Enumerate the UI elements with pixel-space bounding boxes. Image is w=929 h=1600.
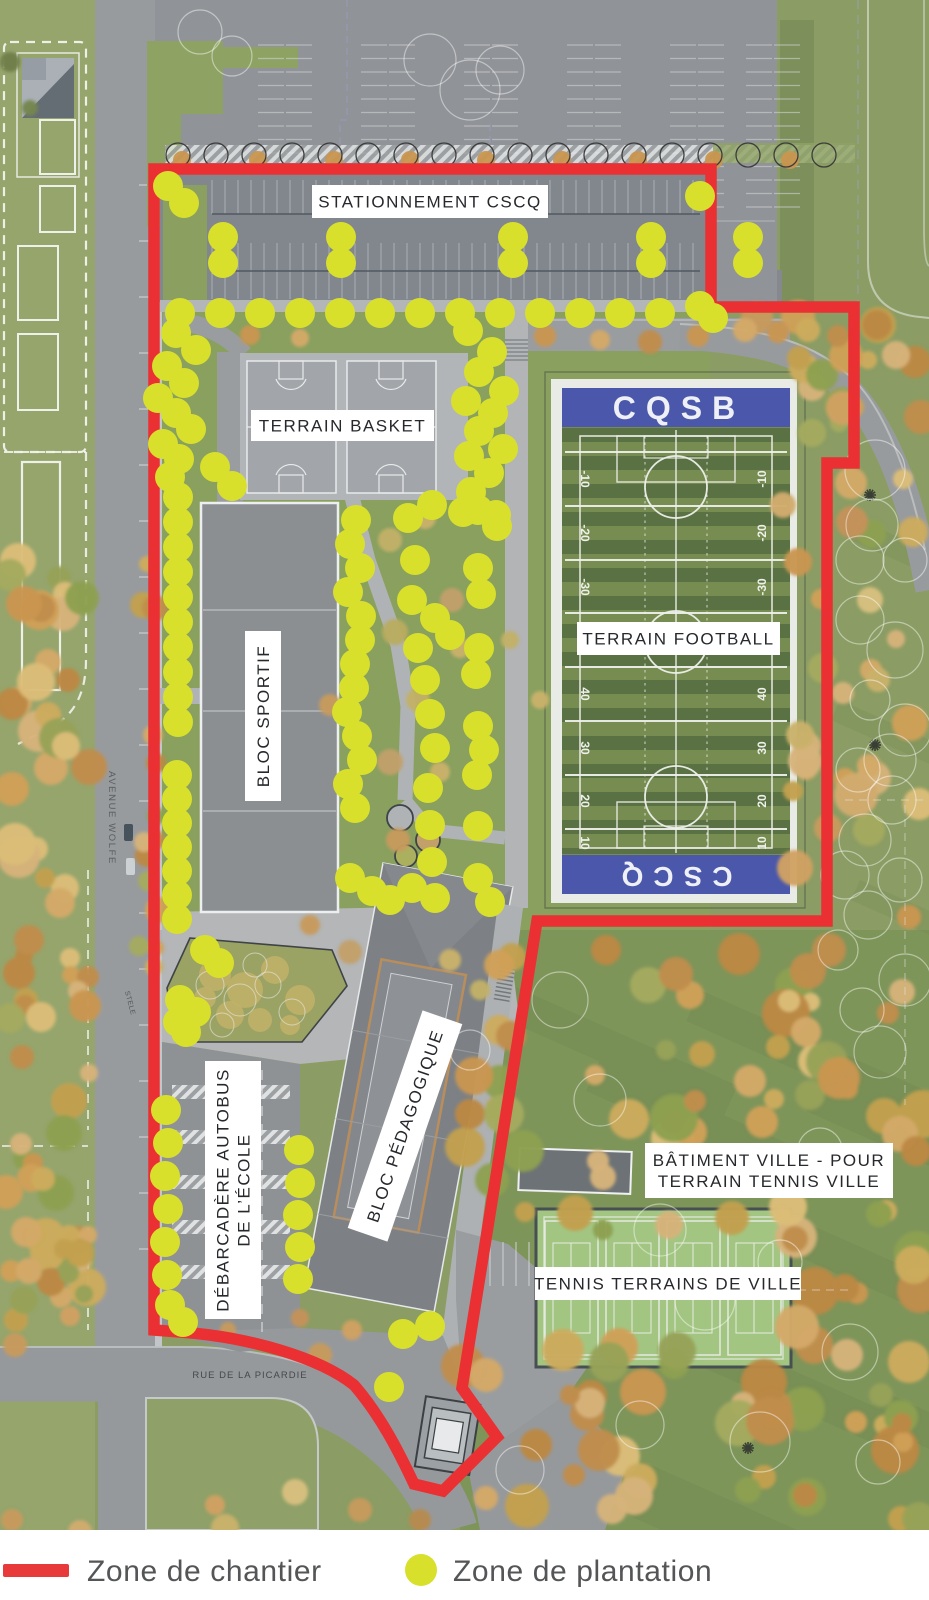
svg-text:-10: -10 (578, 470, 592, 488)
svg-text:10: 10 (755, 836, 769, 850)
svg-text:-30: -30 (578, 578, 592, 596)
svg-text:STATIONNEMENT CSCQ: STATIONNEMENT CSCQ (318, 192, 541, 211)
svg-text:AVENUE WOLFE: AVENUE WOLFE (106, 771, 117, 865)
svg-text:10: 10 (578, 836, 592, 850)
svg-text:BÂTIMENT VILLE - POUR: BÂTIMENT VILLE - POUR (653, 1151, 885, 1170)
svg-text:20: 20 (755, 794, 769, 808)
svg-text:TERRAIN BASKET: TERRAIN BASKET (259, 416, 426, 435)
svg-text:40: 40 (755, 687, 769, 701)
svg-text:40: 40 (578, 687, 592, 701)
svg-text:CQSB: CQSB (613, 390, 745, 426)
svg-text:-20: -20 (578, 524, 592, 542)
svg-text:20: 20 (578, 794, 592, 808)
svg-text:Zone de plantation: Zone de plantation (453, 1555, 712, 1588)
svg-text:30: 30 (578, 741, 592, 755)
svg-text:-20: -20 (755, 524, 769, 542)
svg-text:DE L’ÉCOLE: DE L’ÉCOLE (234, 1133, 253, 1246)
svg-text:30: 30 (755, 741, 769, 755)
svg-text:TERRAIN TENNIS VILLE: TERRAIN TENNIS VILLE (658, 1172, 880, 1191)
svg-text:TENNIS TERRAINS DE VILLE: TENNIS TERRAINS DE VILLE (534, 1275, 802, 1294)
svg-text:BLOC SPORTIF: BLOC SPORTIF (254, 645, 273, 787)
svg-text:-30: -30 (755, 578, 769, 596)
svg-text:TERRAIN FOOTBALL: TERRAIN FOOTBALL (582, 630, 774, 649)
svg-text:Zone de chantier: Zone de chantier (87, 1555, 322, 1588)
svg-text:DÉBARCADÈRE AUTOBUS: DÉBARCADÈRE AUTOBUS (213, 1068, 232, 1312)
svg-text:RUE DE LA PICARDIE: RUE DE LA PICARDIE (192, 1370, 307, 1381)
svg-text:CSCQ: CSCQ (612, 861, 733, 892)
svg-text:-10: -10 (755, 470, 769, 488)
